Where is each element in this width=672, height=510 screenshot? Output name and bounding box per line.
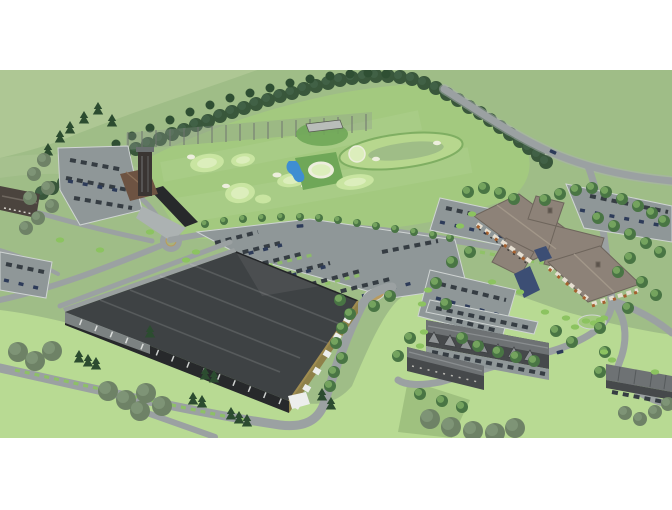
site-rendering-image <box>0 0 672 510</box>
site-rendering <box>0 0 672 510</box>
range-tower <box>138 150 152 196</box>
bottom-margin <box>0 438 672 510</box>
bunker <box>187 155 195 160</box>
bunker <box>273 173 282 178</box>
bunker <box>222 184 230 188</box>
top-margin <box>0 0 672 70</box>
